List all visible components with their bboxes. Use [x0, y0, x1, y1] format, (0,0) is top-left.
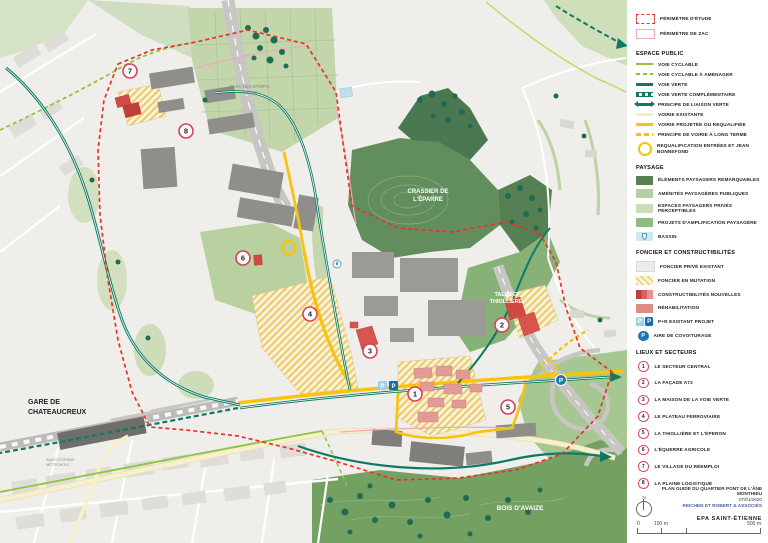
svg-text:7: 7 — [128, 67, 132, 76]
lieux-num-3: 3 — [638, 395, 649, 406]
perimetre-zac-swatch — [636, 29, 655, 39]
pr-project-p: P — [391, 384, 395, 390]
scale-start: 0 — [637, 521, 640, 527]
sector-marker-1: 1 — [408, 387, 422, 401]
legend-item-amplification: PROJETS D'AMPLIFICATION PAYSAGÈRE — [636, 218, 764, 227]
section-lieux: LIEUX ET SECTEURS — [636, 350, 764, 356]
lieux-item-6: 6 L'ÉQUERRE AGRICOLE — [636, 445, 764, 456]
label-parc-2: MÉONS — [242, 90, 258, 95]
legend-item-liaison-verte: PRINCIPE DE LIAISON VERTE — [636, 102, 764, 107]
legend-panel: PÉRIMÈTRE D'ÉTUDE PÉRIMÈTRE DE ZAC ESPAC… — [627, 0, 768, 543]
legend-item-perimetre-zac: PÉRIMÈTRE DE ZAC — [636, 29, 764, 39]
voirie-projetee-swatch — [636, 123, 653, 127]
lieux-num-8: 8 — [638, 478, 649, 489]
legend-item-requalification: REQUALIFICATION ENTRÉES ET JEAN BONNEFON… — [636, 142, 764, 156]
section-paysage: PAYSAGE — [636, 165, 764, 171]
label-talweg-2: THIOLLIÈRE — [490, 297, 523, 305]
label-crassier-1: CRASSIER DE — [407, 189, 448, 195]
legend-item-foncier-prive: FONCIER PRIVÉ EXISTANT — [636, 261, 764, 272]
pr-project-icon: P — [645, 317, 653, 326]
sector-marker-2: 2 — [495, 318, 509, 332]
legend-item-voie-verte-comp: VOIE VERTE COMPLÉMENTAIRE — [636, 92, 764, 97]
lieux-num-2: 2 — [638, 378, 649, 389]
label-gare-2: CHATEAUCREUX — [28, 409, 87, 416]
legend-item-foncier-mutation: FONCIER EN MUTATION — [636, 276, 764, 285]
sector-marker-4: 4 — [303, 307, 317, 321]
constructibilites-swatch — [636, 290, 653, 299]
lieux-item-7: 7 LE VILLAGE DU RÉEMPLOI — [636, 461, 764, 472]
label-talweg-1: TALWEG — [494, 292, 517, 298]
voie-cyclable-amenager-swatch — [636, 73, 653, 75]
legend-item-paysage-remarquables: ÉLÉMENTS PAYSAGERS REMARQUABLES — [636, 176, 764, 185]
legend-item-pr: P P P+R EXISTANT PROJET — [636, 317, 764, 326]
north-arrow: N — [636, 495, 652, 517]
legend-item-espaces-prives: ESPACES PAYSAGERS PRIVÉS PERCEPTIBLES — [636, 203, 764, 214]
north-needle — [643, 499, 644, 510]
amenites-swatch — [636, 189, 653, 198]
lieux-num-4: 4 — [638, 411, 649, 422]
legend-item-bassin: BASSIN — [636, 232, 764, 241]
requalification-circle-swatch — [638, 142, 652, 156]
lieux-item-3: 3 LA MAISON DE LA VOIE VERTE — [636, 395, 764, 406]
sector-marker-5: 5 — [501, 400, 515, 414]
label-metropole-1: SAINT-ÉTIENNE — [46, 457, 75, 462]
liaison-verte-arrow-swatch — [638, 103, 651, 106]
legend-item-voirie-existante: VOIRIE EXISTANTE — [636, 112, 764, 117]
legend-item-rehabilitation: RÉHABILITATION — [636, 304, 764, 313]
legend-item-voie-verte: VOIE VERTE — [636, 82, 764, 87]
svg-text:2: 2 — [500, 321, 504, 330]
scale-mid: 100 m — [654, 521, 668, 527]
scale-bar: 0 100 m 500 m — [637, 521, 761, 534]
sheet-author: REICHEN ET ROBERT & ASSOCIÉS — [648, 503, 762, 508]
map-canvas: P P P PARC DES SPORTS MÉONS CRASSIER DE … — [0, 0, 627, 543]
covoiturage-p: P — [559, 378, 564, 385]
label-metropole-2: MÉTROPOLE — [46, 462, 70, 467]
svg-text:8: 8 — [184, 127, 188, 136]
foncier-prive-swatch — [636, 261, 655, 272]
lieux-num-6: 6 — [638, 445, 649, 456]
pr-existing-p: P — [380, 384, 384, 390]
lieux-num-1: 1 — [638, 361, 649, 372]
voirie-existante-swatch — [636, 113, 653, 117]
amplification-swatch — [636, 218, 653, 227]
legend-item-voirie-long-terme: PRINCIPE DE VOIRIE À LONG TERME — [636, 132, 764, 137]
covoiturage-icon: P — [638, 331, 649, 342]
water-drop-icon — [642, 233, 648, 240]
sheet-title: PLAN GUIDE DU QUARTIER PONT DE L'ÂNE MON… — [648, 486, 762, 496]
svg-text:6: 6 — [241, 254, 245, 263]
scale-end: 500 m — [747, 521, 761, 527]
plan-guide-sheet: P P P PARC DES SPORTS MÉONS CRASSIER DE … — [0, 0, 768, 543]
legend-item-constructibilites: CONSTRUCTIBILITÉS NOUVELLES — [636, 290, 764, 299]
pr-existing-icon: P — [636, 317, 644, 326]
legend-item-voie-cyclable: VOIE CYCLABLE — [636, 62, 764, 67]
voie-verte-swatch — [636, 83, 653, 86]
rehabilitation-swatch — [636, 304, 653, 313]
title-block: PLAN GUIDE DU QUARTIER PONT DE L'ÂNE MON… — [648, 486, 762, 522]
label-crassier-2: L'ÉPARRE — [413, 195, 443, 203]
sector-marker-7: 7 — [123, 64, 137, 78]
legend-item-voie-cyclable-amenager: VOIE CYCLABLE À AMÉNAGER — [636, 72, 764, 77]
voie-verte-comp-swatch — [636, 92, 653, 97]
legend-item-voirie-projetee: VOIRIE PROJETÉE OU REQUALIFIÉE — [636, 122, 764, 127]
lieux-item-1: 1 LE SECTEUR CENTRAL — [636, 361, 764, 372]
scale-bar-line — [637, 528, 761, 534]
sheet-date: 07/01/2020 — [648, 497, 762, 502]
sector-marker-3: 3 — [363, 344, 377, 358]
voie-cyclable-swatch — [636, 63, 653, 65]
legend-item-covoiturage: P AIRE DE COVOITURAGE — [636, 331, 764, 342]
label-gare-1: GARE DE — [28, 399, 60, 406]
section-foncier: FONCIER ET CONSTRUCTIBILITÉS — [636, 250, 764, 256]
lieux-num-5: 5 — [638, 428, 649, 439]
label-parc-1: PARC DES SPORTS — [230, 84, 270, 89]
bassin-swatch — [636, 232, 653, 241]
pr-swatch: P P — [636, 317, 653, 326]
north-circle — [636, 501, 652, 517]
sector-marker-6: 6 — [236, 251, 250, 265]
espaces-prives-swatch — [636, 204, 653, 213]
lieux-item-4: 4 LE PLATEAU FERROVIAIRE — [636, 411, 764, 422]
perimetre-etude-swatch — [636, 14, 655, 24]
svg-text:5: 5 — [506, 403, 510, 412]
svg-text:3: 3 — [368, 347, 372, 356]
svg-text:1: 1 — [413, 390, 417, 399]
paysage-remarquables-swatch — [636, 176, 653, 185]
sector-marker-8: 8 — [179, 124, 193, 138]
voirie-long-terme-swatch — [636, 133, 653, 137]
lieux-item-2: 2 LA FAÇADE A72 — [636, 378, 764, 389]
section-espace-public: ESPACE PUBLIC — [636, 51, 764, 57]
label-bois: BOIS D'AVAIZE — [497, 505, 544, 512]
lieux-item-5: 5 LA THIOLLIÈRE ET L'ÉPERON — [636, 428, 764, 439]
foncier-mutation-swatch — [636, 276, 653, 285]
legend-item-perimetre-etude: PÉRIMÈTRE D'ÉTUDE — [636, 14, 764, 24]
legend-item-amenites: AMÉNITÉS PAYSAGÈRES PUBLIQUES — [636, 189, 764, 198]
lieux-num-7: 7 — [638, 461, 649, 472]
